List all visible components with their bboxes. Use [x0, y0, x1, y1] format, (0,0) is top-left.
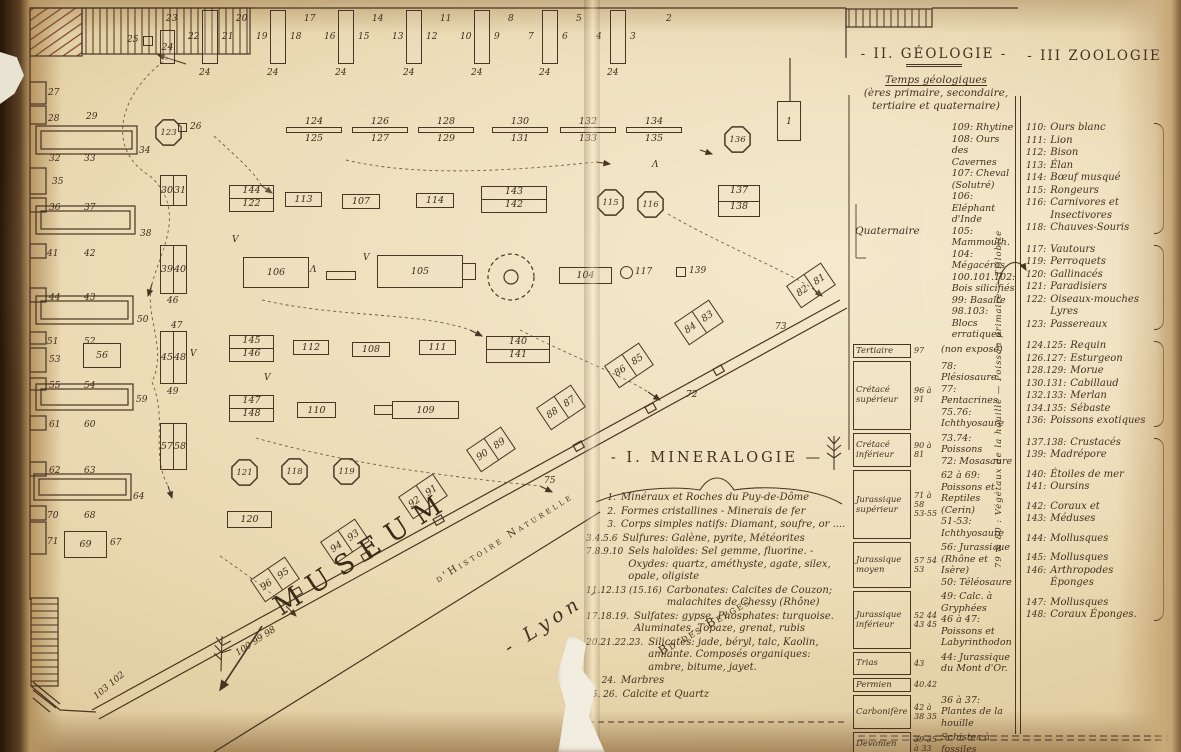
mineralogie-item: 25. 26.Calcite et Quartz: [586, 689, 848, 702]
item-text: Marbres: [621, 675, 848, 688]
case-number: 33: [84, 154, 95, 164]
era-items: Schistes à fossiles: [941, 732, 1013, 752]
case-number: 146: [230, 348, 273, 361]
case-number: 130: [511, 116, 529, 127]
gallery-24-number: 24: [471, 68, 482, 78]
display-case-bar: 124125: [286, 116, 342, 144]
zoologie-item: 110:Ours blanc: [1026, 122, 1154, 135]
mineralogie-panel: - I. MINERALOGIE — 1.Minéraux et Roches …: [586, 450, 848, 702]
zoologie-item: 119:Perroquets: [1026, 256, 1154, 269]
era-item-line: 106: Eléphant d'Inde: [952, 191, 1016, 226]
bay-number: 23: [166, 14, 177, 24]
display-case-octagon: 116: [637, 191, 664, 218]
mineralogie-item: 20.21.22.23.Silicates: jade, béryl, talc…: [586, 637, 848, 675]
zoologie-item: 146:Arthropodes Éponges: [1026, 565, 1154, 590]
item-text: Formes cristallines - Minerais de fer: [621, 506, 848, 519]
item-text: Mollusques: [1050, 597, 1108, 610]
display-case-tilted: 8281: [786, 263, 836, 309]
item-text: Lion: [1050, 135, 1072, 148]
item-number: 113:: [1026, 160, 1046, 173]
case-number: 113: [294, 194, 312, 205]
zoologie-item: 117:Vautours: [1026, 244, 1154, 257]
era-case-numbers: 96 à 91: [914, 361, 938, 430]
zoologie-group: 124.125:Requin126.127:Esturgeon128.129:M…: [1026, 340, 1178, 428]
pier-number-right: 18: [290, 32, 301, 42]
geologie-era-row: Crétacé supérieur96 à 9178: Plésiosaure7…: [853, 361, 1013, 430]
display-case: 104: [559, 267, 612, 284]
display-case-double: 143142: [481, 186, 547, 213]
case-number: 62: [49, 466, 60, 476]
pier-number-right: 3: [630, 32, 636, 42]
item-number: 134.135:: [1026, 403, 1066, 416]
case-number: 117: [635, 267, 652, 277]
zoologie-item: 123:Passereaux: [1026, 319, 1154, 332]
item-text: Gallinacés: [1050, 269, 1103, 282]
era-item-line: 46 à 47: Poissons et Labyrinthodon: [941, 614, 1013, 649]
item-text: Vautours: [1050, 244, 1095, 257]
display-case-double: 147148: [229, 395, 274, 422]
case-number: 116: [637, 191, 664, 218]
case-number: 131: [511, 133, 529, 144]
case-number: 69: [79, 539, 91, 550]
item-text: Morue: [1070, 365, 1103, 378]
item-text: Poissons exotiques: [1050, 415, 1145, 428]
group-bracket: [1154, 245, 1164, 331]
case-number: 132: [579, 116, 597, 127]
mineralogie-list: 1.Minéraux et Roches du Puy-de-Dôme2.For…: [586, 492, 848, 701]
group-label: Poissons: [1168, 340, 1181, 428]
case-number: 141: [487, 349, 549, 362]
display-case-pair: 5758: [160, 423, 187, 470]
case-number: 61: [49, 420, 60, 430]
case-number: 41: [47, 249, 58, 259]
display-case-bar: 126127: [352, 116, 408, 144]
era-item-line: 105: Mammouth.: [952, 226, 1016, 249]
item-text: Coraux et: [1050, 501, 1100, 514]
geologie-era-row: Jurassique inférieur52 44 43 4549: Calc.…: [853, 591, 1013, 649]
item-number: 124.125:: [1026, 340, 1066, 353]
case-number: 135: [645, 133, 663, 144]
case-number: 1: [786, 116, 792, 127]
zoologie-item: 118:Chauves-Souris: [1026, 222, 1154, 235]
display-case-double: 144122: [229, 185, 274, 212]
item-text: Crustacés: [1070, 437, 1121, 450]
item-number: 121:: [1026, 281, 1046, 294]
display-case-notched: 109: [392, 401, 459, 419]
case-number: 36: [49, 203, 60, 213]
item-number: 126.127:: [1026, 353, 1066, 366]
display-case: 113: [285, 192, 322, 207]
display-case-tilted: 8685: [604, 343, 654, 389]
group-label: Oiseaux: [1168, 244, 1181, 332]
item-number: 141:: [1026, 481, 1046, 494]
pier-number-right: 12: [426, 32, 437, 42]
zoologie-item: 132.133:Merlan: [1026, 390, 1154, 403]
group-label-text: Poissons: [1168, 360, 1181, 408]
display-case-small: [178, 123, 187, 132]
display-case-double: 140141: [486, 336, 550, 363]
era-label: Jurassique moyen: [853, 542, 911, 588]
era-label: Crétacé inférieur: [853, 433, 911, 468]
zoologie-item: 144:Mollusques: [1026, 533, 1154, 546]
case-number: 115: [597, 189, 624, 216]
item-text: Corps simples natifs: Diamant, soufre, o…: [621, 519, 848, 532]
display-case: 106: [243, 257, 309, 288]
case-number: 44: [49, 293, 60, 303]
era-case-numbers: 40.42: [914, 678, 938, 692]
case-number: 51: [47, 337, 58, 347]
zoologie-item: 134.135:Sébaste: [1026, 403, 1154, 416]
display-case-tilted: 9089: [466, 427, 516, 473]
item-number: 123:: [1026, 319, 1046, 332]
zoologie-item: 111:Lion: [1026, 135, 1154, 148]
pier-number-left: 19: [256, 32, 267, 42]
item-text: Cabillaud: [1070, 378, 1118, 391]
pier-case: [474, 10, 490, 64]
case-number: 109: [416, 405, 434, 416]
mineralogie-item: 7.8.9.10Sels haloïdes: Sel gemme, fluori…: [586, 546, 848, 584]
case-number: 104: [576, 270, 594, 281]
item-number: 116:: [1026, 197, 1046, 222]
pier-number-left: 10: [460, 32, 471, 42]
item-number: 122:: [1026, 294, 1046, 319]
mineralogie-item: 2.Formes cristallines - Minerais de fer: [586, 506, 848, 519]
display-case-circle: [620, 266, 633, 279]
case-number: 147: [230, 396, 273, 408]
item-number: 7.8.9.10: [586, 546, 623, 584]
era-case-numbers: 39 35 à 33: [914, 732, 938, 752]
era-case-numbers: 90 à 81: [914, 433, 938, 468]
display-case: 110: [297, 402, 336, 418]
zoologie-item: 124.125:Requin: [1026, 340, 1154, 353]
display-case: [326, 271, 356, 280]
zoologie-group: 110:Ours blanc111:Lion112:Bison113:Élan1…: [1026, 122, 1178, 235]
case-number: 67: [110, 538, 121, 548]
geologie-subtitle-line1: Temps géologiques: [856, 74, 1016, 87]
case-number: 37: [84, 203, 95, 213]
item-number: 148:: [1026, 609, 1046, 622]
item-text: Sulfures: Galène, pyrite, Météorites: [623, 533, 849, 546]
pier-case: [406, 10, 422, 64]
zoologie-item: 115:Rongeurs: [1026, 185, 1154, 198]
display-case-tilted: 8887: [536, 385, 586, 431]
zoologie-item: 121:Paradisiers: [1026, 281, 1154, 294]
case-number: 56: [96, 350, 108, 361]
mineralogie-item: 1.Minéraux et Roches du Puy-de-Dôme: [586, 492, 848, 505]
era-label: Permien: [853, 678, 911, 692]
display-case-small: [143, 36, 153, 46]
era-item-line: 44: Jurassique du Mont d'Or.: [941, 652, 1013, 675]
era-item-line: 99: Basalte: [952, 295, 1016, 307]
case-number: 107: [352, 196, 370, 207]
case-number: 120: [240, 514, 258, 525]
zoologie-item: 128.129:Morue: [1026, 365, 1154, 378]
item-number: 117:: [1026, 244, 1046, 257]
case-number: 53: [49, 355, 60, 365]
case-number: 25: [127, 35, 138, 45]
item-text: Rongeurs: [1050, 185, 1099, 198]
item-text: Mollusques: [1050, 533, 1108, 546]
zoologie-item: 136:Poissons exotiques: [1026, 415, 1154, 428]
zoologie-item: 142:Coraux et: [1026, 501, 1154, 514]
mineralogie-item: 17.18.19.Sulfates: gypse. Phosphates: tu…: [586, 611, 848, 636]
case-number: 118: [281, 458, 308, 485]
item-text: Chauves-Souris: [1050, 222, 1129, 235]
pier-number-left: 7: [528, 32, 534, 42]
item-number: 114:: [1026, 172, 1046, 185]
era-label: Quaternaire: [853, 122, 922, 341]
case-number: 106: [267, 267, 285, 278]
zoologie-group: 137.138:Crustacés139:Madrépore140:Étoile…: [1026, 437, 1178, 622]
case-number: 71: [47, 537, 58, 547]
item-text: Mollusques: [1050, 552, 1108, 565]
pier-case: [270, 10, 286, 64]
case-number: 47: [171, 321, 182, 331]
display-case: 108: [352, 342, 390, 357]
case-number: 57: [161, 424, 173, 469]
zoologie-item: 116:Carnivores et Insectivores: [1026, 197, 1154, 222]
item-number: 11.12.13 (15.16): [586, 585, 662, 610]
case-number: 48: [173, 332, 186, 383]
display-case-small: [676, 267, 686, 277]
display-case: 107: [342, 194, 380, 209]
case-number: Λ: [652, 160, 659, 170]
era-items: 36 à 37: Plantes de la houille: [941, 695, 1013, 730]
era-case-numbers: 97: [914, 344, 938, 358]
era-item-line: 104: Mégacéros: [952, 249, 1016, 272]
pier-case: [610, 10, 626, 64]
geologie-era-row: Tertiaire97(non exposé): [853, 344, 1013, 358]
group-label: Mammifères: [1168, 122, 1181, 235]
item-number: 111:: [1026, 135, 1046, 148]
item-text: Bison: [1050, 147, 1078, 160]
era-label: Tertiaire: [853, 344, 911, 358]
case-number: 30: [161, 176, 173, 205]
display-case-pair: 3940: [160, 245, 187, 294]
bay-number: 8: [508, 14, 514, 24]
zoologie-item: 143:Méduses: [1026, 513, 1154, 526]
item-text: Calcite et Quartz: [623, 689, 849, 702]
display-case-bar: 132133: [560, 116, 616, 144]
era-item-line: 50: Téléosaure: [941, 577, 1013, 589]
display-case-double: 145146: [229, 335, 274, 362]
item-number: 3.: [586, 519, 616, 532]
pier-case: [338, 10, 354, 64]
case-number: 133: [579, 133, 597, 144]
era-case-numbers: 43: [914, 652, 938, 675]
gallery-24-number: 24: [199, 68, 210, 78]
scanned-museum-plan-page: 2320171411852222124191824161524131224109…: [0, 0, 1181, 752]
item-text: Merlan: [1070, 390, 1107, 403]
era-case-numbers: 71 à 58 53-55: [914, 470, 938, 539]
item-number: 118:: [1026, 222, 1046, 235]
case-number: V: [190, 349, 197, 359]
case-number: 105: [411, 266, 429, 277]
item-number: 137.138:: [1026, 437, 1066, 450]
bay-number: 14: [372, 14, 383, 24]
case-number: 75: [544, 476, 555, 486]
case-number: 114: [426, 195, 444, 206]
item-number: 120:: [1026, 269, 1046, 282]
item-number: 2.: [586, 506, 616, 519]
gallery-24-number: 24: [267, 68, 278, 78]
display-case: 1: [777, 101, 801, 141]
case-number: 27: [48, 88, 59, 98]
case-number: 142: [482, 199, 546, 212]
gallery-24-number: 24: [539, 68, 550, 78]
item-text: Élan: [1050, 160, 1073, 173]
zoologie-item: 139:Madrépore: [1026, 449, 1154, 462]
case-number: 58: [173, 424, 186, 469]
era-item-line: 49: Calc. à Gryphées: [941, 591, 1013, 614]
case-number: 34: [139, 146, 150, 156]
era-item-line: 36 à 37: Plantes de la houille: [941, 695, 1013, 730]
bay-number: 5: [576, 14, 582, 24]
era-label: Jurassique inférieur: [853, 591, 911, 649]
display-case: 112: [293, 340, 329, 355]
zoologie-item: 130.131:Cabillaud: [1026, 378, 1154, 391]
case-number: 42: [84, 249, 95, 259]
item-text: Perroquets: [1050, 256, 1106, 269]
zoologie-item: 114:Bœuf musqué: [1026, 172, 1154, 185]
case-number: 127: [371, 133, 389, 144]
item-number: 20.21.22.23.: [586, 637, 643, 675]
item-number: 145:: [1026, 552, 1046, 565]
display-case: 114: [416, 193, 454, 208]
item-text: Méduses: [1050, 513, 1095, 526]
era-item-line: 107: Cheval (Solutré): [952, 168, 1016, 191]
case-number: 38: [140, 229, 151, 239]
era-items: 109: Rhytine108: Ours des Cavernes107: C…: [952, 122, 1016, 341]
zoologie-list: 110:Ours blanc111:Lion112:Bison113:Élan1…: [1026, 122, 1178, 631]
zoologie-title: - III ZOOLOGIE -: [1026, 48, 1176, 64]
era-label: Jurassique supérieur: [853, 470, 911, 539]
pier-number-left: 13: [392, 32, 403, 42]
era-item-line: Schistes à fossiles: [941, 732, 1013, 752]
group-label-text: Mammifères: [1168, 143, 1181, 213]
case-number: 126: [371, 116, 389, 127]
mineralogie-item: 3.4.5.6Sulfures: Galène, pyrite, Météori…: [586, 533, 848, 546]
item-text: Passereaux: [1050, 319, 1107, 332]
item-text: Esturgeon: [1070, 353, 1122, 366]
bay-number: 11: [440, 14, 451, 24]
geologie-era-row: Dévonien39 35 à 33Schistes à fossiles: [853, 732, 1013, 752]
case-number: 70: [47, 511, 58, 521]
geologie-era-row: Permien40.42: [853, 678, 1013, 692]
geologie-era-row: Jurassique moyen57 54 5356: Jurassique (…: [853, 542, 1013, 588]
group-label-text: Invertébrés: [1168, 497, 1181, 562]
pier-number-right: 6: [562, 32, 568, 42]
case-number: 110: [307, 405, 325, 416]
display-case: 120: [227, 511, 272, 528]
zoologie-item: 145:Mollusques: [1026, 552, 1154, 565]
group-bracket: [1154, 438, 1164, 621]
gallery-24-number: 24: [403, 68, 414, 78]
item-number: 128.129:: [1026, 365, 1066, 378]
case-number: 46: [167, 296, 178, 306]
item-number: 3.4.5.6: [586, 533, 618, 546]
era-case-numbers: 57 54 53: [914, 542, 938, 588]
zoologie-item: 126.127:Esturgeon: [1026, 353, 1154, 366]
display-case: 111: [419, 340, 456, 355]
case-number: 125: [305, 133, 323, 144]
case-number: 145: [230, 336, 273, 348]
pier-case: [542, 10, 558, 64]
case-number: 59: [136, 395, 147, 405]
item-text: Silicates: jade, béryl, talc, Kaolin, am…: [648, 637, 848, 675]
display-case: 56: [83, 343, 121, 368]
display-case-double: 137138: [718, 185, 760, 217]
era-items: [941, 678, 1013, 692]
zoologie-group: 117:Vautours119:Perroquets120:Gallinacés…: [1026, 244, 1178, 332]
item-number: 115:: [1026, 185, 1046, 198]
pier-number-left: 22: [188, 32, 199, 42]
item-number: 147:: [1026, 597, 1046, 610]
case-number: 26: [190, 122, 201, 132]
item-number: 143:: [1026, 513, 1046, 526]
item-number: 136:: [1026, 415, 1046, 428]
case-number: 122: [230, 198, 273, 211]
case-number: 54: [84, 381, 95, 391]
item-number: 132.133:: [1026, 390, 1066, 403]
item-text: Sels haloïdes: Sel gemme, fluorine. - Ox…: [628, 546, 848, 584]
group-bracket: [1154, 341, 1164, 427]
item-number: 17.18.19.: [586, 611, 629, 636]
geologie-title-rule: [906, 64, 962, 67]
case-number: 28: [48, 114, 59, 124]
geologie-subtitle: Temps géologiques (ères primaire, second…: [856, 74, 1016, 113]
era-case-numbers: 52 44 43 45: [914, 591, 938, 649]
item-number: 130.131:: [1026, 378, 1066, 391]
item-text: Minéraux et Roches du Puy-de-Dôme: [621, 492, 848, 505]
case-number: 60: [84, 420, 95, 430]
item-number: 146:: [1026, 565, 1046, 590]
display-case: 69: [64, 531, 107, 558]
case-number: 137: [719, 186, 759, 201]
item-text: Bœuf musqué: [1050, 172, 1120, 185]
era-item-line: 108: Ours des Cavernes: [952, 134, 1016, 169]
case-number: 39: [161, 246, 173, 293]
mineralogie-item: 24.Marbres: [586, 675, 848, 688]
zoologie-item: 148:Coraux Éponges.: [1026, 609, 1154, 622]
case-number: 144: [230, 186, 273, 198]
case-number: 55: [49, 381, 60, 391]
case-number: 119: [333, 458, 360, 485]
display-case-notched: 105: [377, 255, 463, 288]
case-number: 72: [686, 390, 697, 400]
case-number: Λ: [310, 265, 317, 275]
geologie-era-row: Trias4344: Jurassique du Mont d'Or.: [853, 652, 1013, 675]
zoologie-item: 147:Mollusques: [1026, 597, 1154, 610]
bay-number: 20: [236, 14, 247, 24]
case-number: V: [232, 235, 239, 245]
item-text: Sulfates: gypse. Phosphates: turquoise. …: [634, 611, 848, 636]
item-number: 110:: [1026, 122, 1046, 135]
item-text: Madrépore: [1050, 449, 1106, 462]
zoologie-item: 112:Bison: [1026, 147, 1154, 160]
era-label: Dévonien: [853, 732, 911, 752]
case-number: V: [363, 253, 370, 263]
item-number: 140:: [1026, 469, 1046, 482]
group-label: Invertébrés: [1168, 437, 1181, 622]
display-case-octagon: 119: [333, 458, 360, 485]
zoologie-item: 122:Oiseaux-mouches Lyres: [1026, 294, 1154, 319]
item-number: 142:: [1026, 501, 1046, 514]
zoologie-item: 141:Oursins: [1026, 481, 1154, 494]
zoologie-item: 140:Étoiles de mer: [1026, 469, 1154, 482]
era-item-line: 109: Rhytine: [952, 122, 1016, 134]
zoologie-item: 113:Élan: [1026, 160, 1154, 173]
